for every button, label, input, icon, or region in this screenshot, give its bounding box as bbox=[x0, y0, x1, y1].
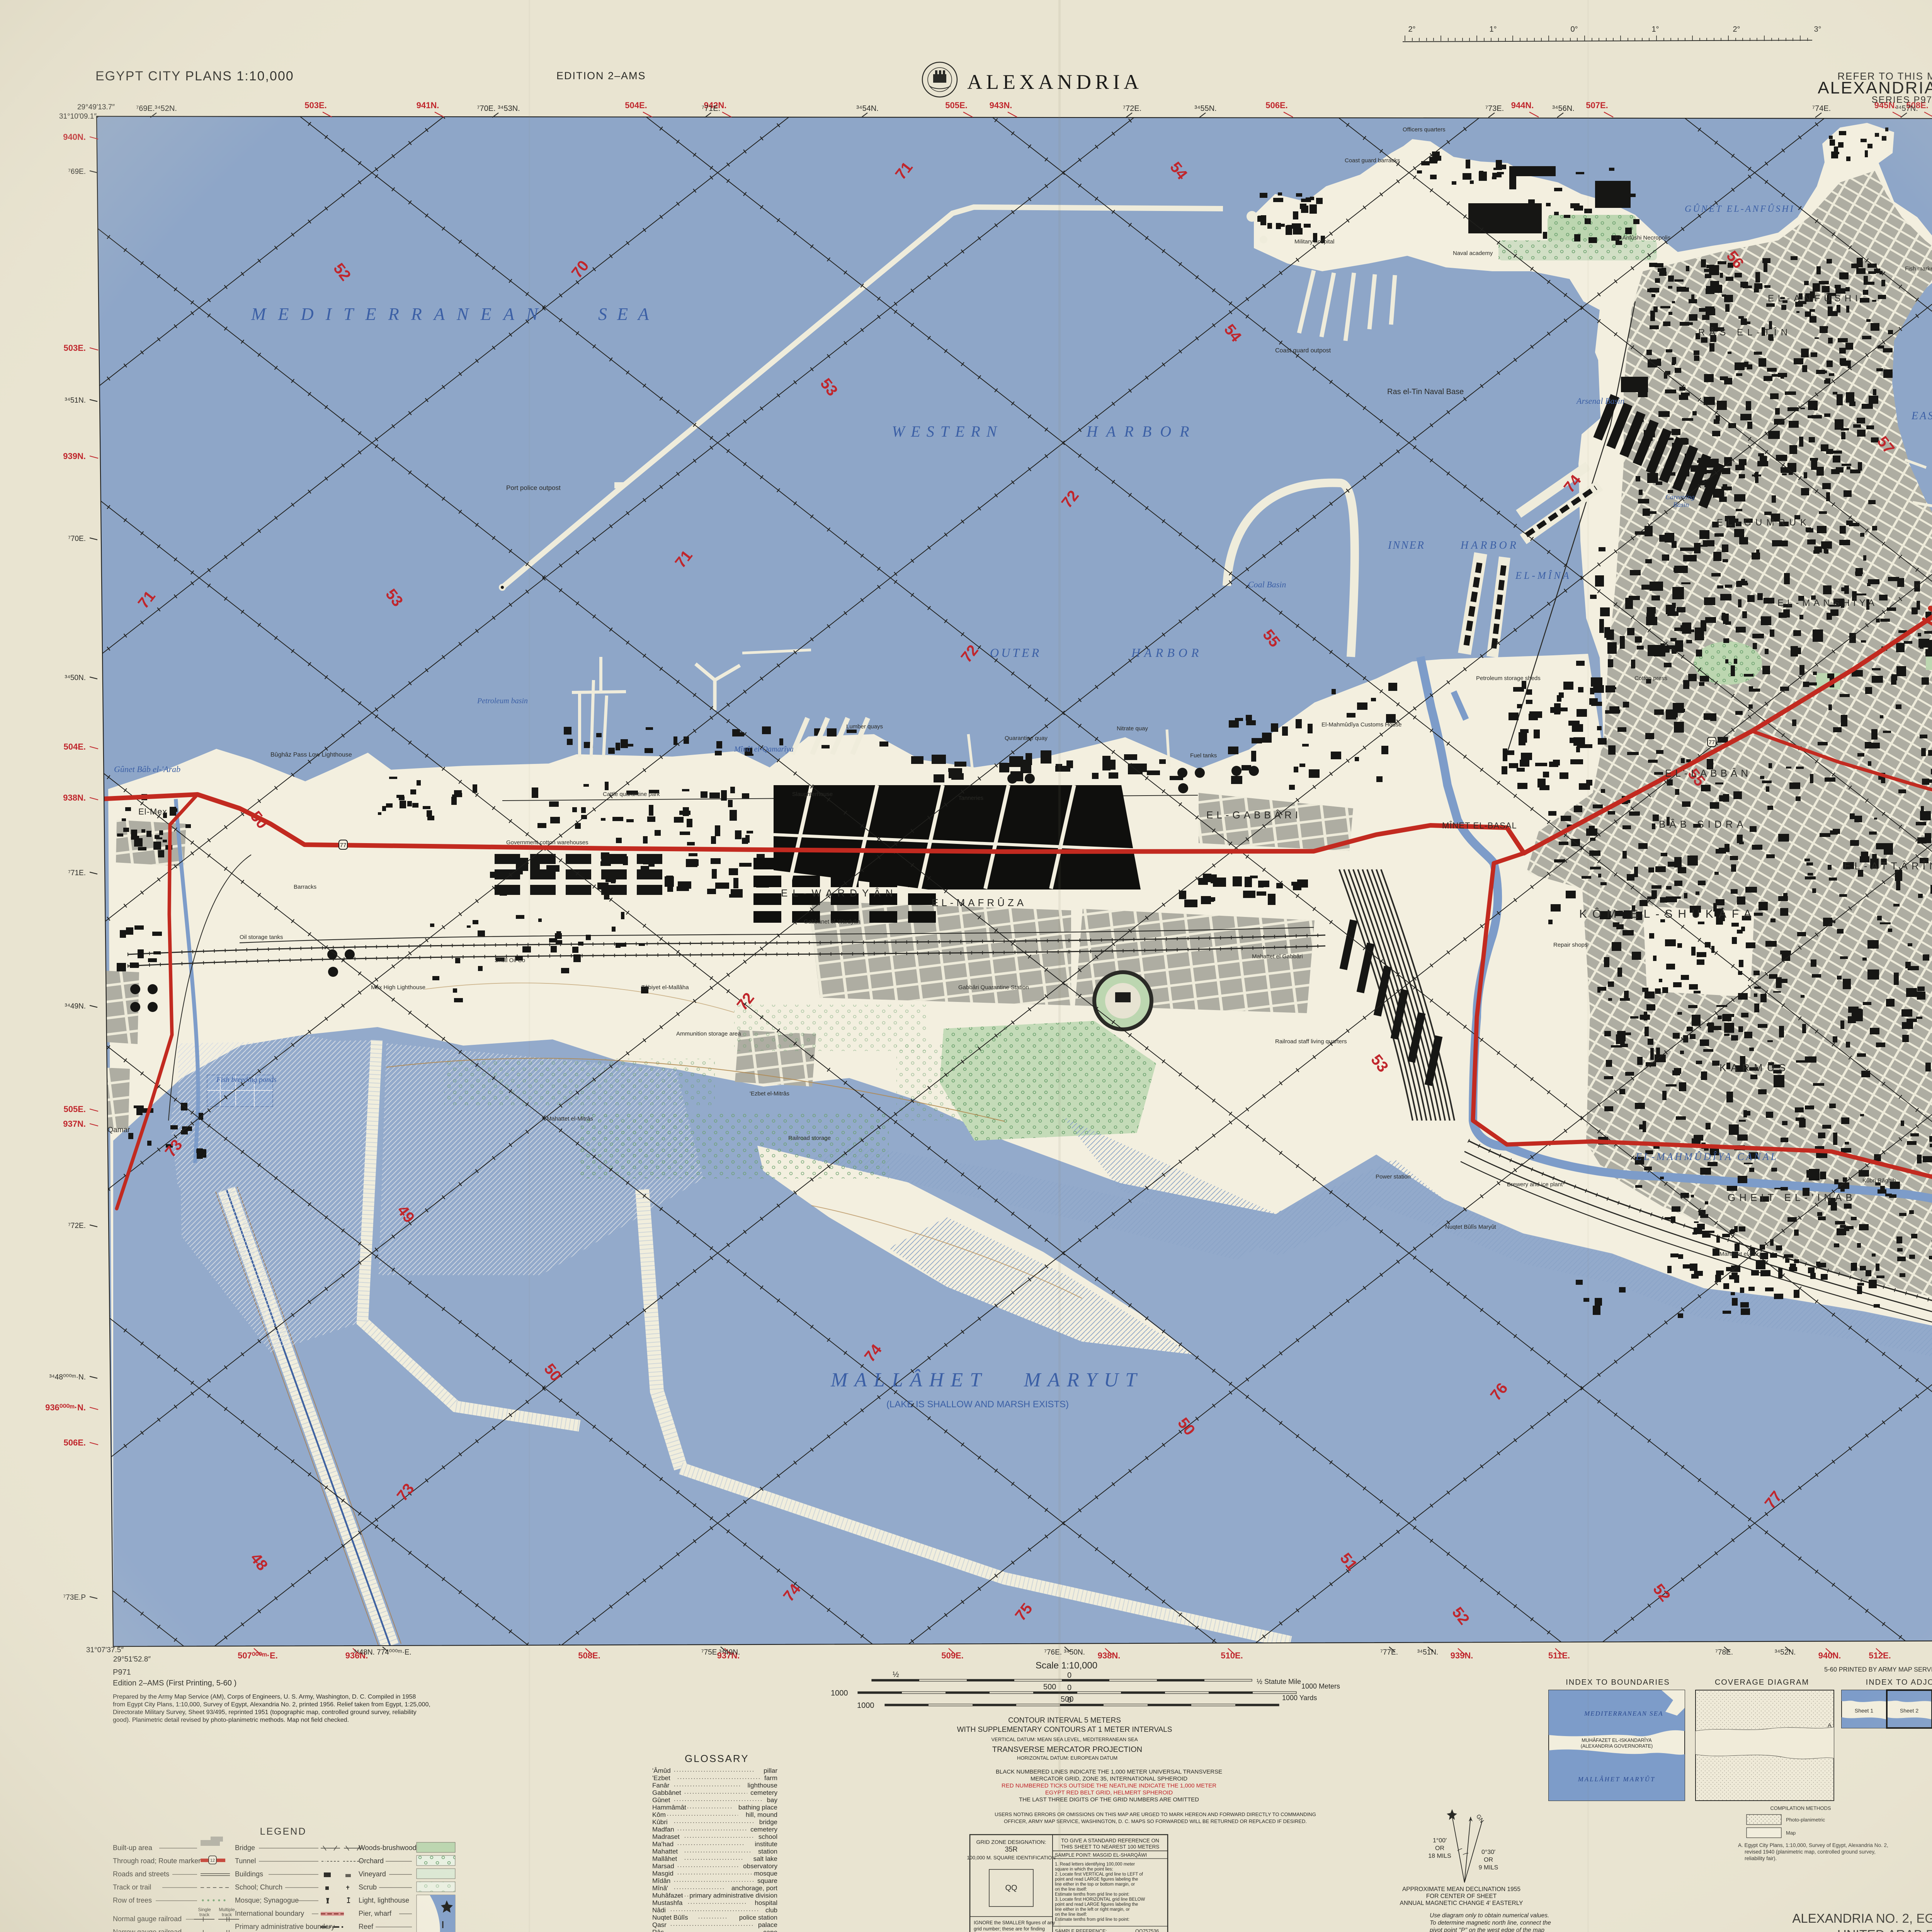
svg-text:⁷72E.: ⁷72E. bbox=[1123, 104, 1141, 113]
svg-text:Mahattet el-Farz: Mahattet el-Farz bbox=[1719, 1251, 1762, 1257]
svg-text:⁷73E.P: ⁷73E.P bbox=[63, 1594, 86, 1602]
svg-text:³⁴52N.: ³⁴52N. bbox=[1775, 1648, 1796, 1656]
svg-text:5-60 PRINTED BY ARMY MAP: 5-60 PRINTED BY ARMY MAP SERVICE, CORPS … bbox=[1824, 1666, 1932, 1673]
svg-text:³⁴57N.: ³⁴57N. bbox=[1896, 104, 1918, 113]
svg-text:OUTER: OUTER bbox=[990, 646, 1041, 660]
svg-text:Mustashfa: Mustashfa bbox=[652, 1899, 683, 1906]
svg-text:Marsad: Marsad bbox=[652, 1862, 674, 1870]
svg-text:farm: farm bbox=[764, 1774, 777, 1782]
svg-text:944N.: 944N. bbox=[1511, 100, 1534, 110]
svg-text:77: 77 bbox=[340, 842, 347, 849]
svg-text:Cotton press: Cotton press bbox=[1634, 675, 1667, 682]
svg-text:School; Church: School; Church bbox=[235, 1883, 282, 1891]
svg-text:Mînâ': Mînâ' bbox=[652, 1884, 668, 1892]
svg-text:TO GIVE A STANDARD REFERENCE O: TO GIVE A STANDARD REFERENCE ON bbox=[1061, 1838, 1159, 1844]
svg-text:⁷73E.: ⁷73E. bbox=[1485, 104, 1504, 113]
svg-text:0: 0 bbox=[1067, 1684, 1071, 1692]
svg-text:Arsenal Basin: Arsenal Basin bbox=[1576, 396, 1624, 406]
svg-text:reliability fair).: reliability fair). bbox=[1745, 1855, 1777, 1861]
svg-text:palace: palace bbox=[758, 1921, 777, 1929]
svg-text:MÎNET EL-BASAL: MÎNET EL-BASAL bbox=[1442, 821, 1517, 830]
svg-text:Normal gauge railroad: Normal gauge railroad bbox=[113, 1915, 182, 1923]
svg-text:EL-MANSHÎYA: EL-MANSHÎYA bbox=[1777, 598, 1878, 608]
svg-text:Railroad storage: Railroad storage bbox=[788, 1135, 831, 1141]
svg-text:Bûghâz Pass Low Lighthouse: Bûghâz Pass Low Lighthouse bbox=[270, 752, 352, 758]
svg-text:1000: 1000 bbox=[831, 1689, 848, 1697]
svg-text:Gabbânet: Gabbânet bbox=[652, 1789, 681, 1796]
svg-text:2. Locate first VERTICAL grid: 2. Locate first VERTICAL grid line to LE… bbox=[1055, 1872, 1143, 1877]
svg-text:⁷74E.: ⁷74E. bbox=[1812, 104, 1831, 113]
svg-text:Prepared by the Army Map Servi: Prepared by the Army Map Service (AM), C… bbox=[113, 1694, 416, 1700]
svg-text:HARBOR: HARBOR bbox=[1460, 539, 1519, 551]
svg-text:OR: OR bbox=[1484, 1857, 1493, 1863]
svg-text:RED NUMBERED TICKS OUTSIDE THE: RED NUMBERED TICKS OUTSIDE THE NEATLINE … bbox=[1002, 1782, 1216, 1789]
svg-text:2°: 2° bbox=[1408, 25, 1415, 34]
svg-text:cemetery: cemetery bbox=[750, 1826, 777, 1833]
svg-text:1°: 1° bbox=[1489, 25, 1497, 34]
svg-text:EL-GABBÂRI: EL-GABBÂRI bbox=[1206, 809, 1301, 821]
svg-text:77: 77 bbox=[1709, 739, 1715, 746]
svg-text:COVERAGE DIAGRAM: COVERAGE DIAGRAM bbox=[1715, 1678, 1809, 1687]
svg-text:cape: cape bbox=[763, 1929, 777, 1932]
svg-text:Tanneries: Tanneries bbox=[958, 795, 983, 801]
svg-text:Sheet 2: Sheet 2 bbox=[1900, 1708, 1918, 1714]
svg-text:THE LAST THREE DIGITS OF THE G: THE LAST THREE DIGITS OF THE GRID NUMBER… bbox=[1019, 1796, 1199, 1803]
svg-text:Mallâhet: Mallâhet bbox=[652, 1855, 677, 1862]
svg-text:506E.: 506E. bbox=[1265, 100, 1288, 110]
svg-text:29°49′13.7″: 29°49′13.7″ bbox=[77, 103, 115, 111]
svg-text:Ammunition storage area: Ammunition storage area bbox=[676, 1031, 741, 1037]
svg-text:940N.: 940N. bbox=[63, 132, 86, 142]
svg-text:IGNORE the SMALLER figures of: IGNORE the SMALLER figures of any bbox=[974, 1920, 1055, 1925]
svg-text:EL-MAHMÛDÎYA CANAL: EL-MAHMÛDÎYA CANAL bbox=[1635, 1151, 1778, 1162]
svg-text:point and read LARGE figures l: point and read LARGE figures labeling th… bbox=[1055, 1877, 1138, 1882]
svg-text:OFFICER, ARMY MAP SERVICE, WAS: OFFICER, ARMY MAP SERVICE, WASHINGTON, D… bbox=[1004, 1818, 1307, 1824]
svg-text:Petroleum storage sheds: Petroleum storage sheds bbox=[1476, 675, 1541, 682]
svg-text:Roads and streets: Roads and streets bbox=[113, 1870, 169, 1878]
svg-text:good). Planimetric detail rev: good). Planimetric detail revised by pho… bbox=[113, 1717, 349, 1723]
svg-text:Mosque; Synagogue: Mosque; Synagogue bbox=[235, 1896, 299, 1904]
svg-text:MERCATOR GRID, ZONE 35, INTERN: MERCATOR GRID, ZONE 35, INTERNATIONAL SP… bbox=[1031, 1776, 1187, 1782]
svg-text:Ras el-Tin Naval Base: Ras el-Tin Naval Base bbox=[1387, 388, 1464, 396]
svg-text:Nuqtet Bûlîs Maryût: Nuqtet Bûlîs Maryût bbox=[1445, 1224, 1497, 1230]
svg-text:lighthouse: lighthouse bbox=[747, 1782, 777, 1789]
svg-text:½: ½ bbox=[893, 1670, 899, 1679]
svg-text:936⁰⁰⁰ᵐ·N.: 936⁰⁰⁰ᵐ·N. bbox=[45, 1403, 86, 1412]
svg-text:INNER: INNER bbox=[1388, 539, 1425, 551]
svg-text:Built-up area: Built-up area bbox=[113, 1844, 153, 1852]
svg-text:WESTERN: WESTERN bbox=[892, 423, 1003, 440]
svg-text:square: square bbox=[757, 1877, 777, 1884]
svg-text:Coast guard outpost: Coast guard outpost bbox=[1275, 347, 1331, 354]
svg-text:Mahattet: Mahattet bbox=[652, 1848, 678, 1855]
svg-text:Through road; Route marker: Through road; Route marker bbox=[113, 1857, 201, 1865]
svg-text:Directorate Military Survey, S: Directorate Military Survey, Sheet 93/49… bbox=[113, 1709, 417, 1716]
svg-text:31°07′37.5″: 31°07′37.5″ bbox=[86, 1646, 124, 1654]
svg-text:BÂB SIDRA: BÂB SIDRA bbox=[1659, 818, 1747, 830]
svg-text:Shell Oil Co: Shell Oil Co bbox=[495, 957, 525, 964]
svg-text:⁷72E.: ⁷72E. bbox=[68, 1222, 86, 1230]
svg-text:Gabbâri Quarantine Station: Gabbâri Quarantine Station bbox=[958, 984, 1029, 991]
svg-text:2°: 2° bbox=[1733, 25, 1740, 34]
svg-text:Repair shops: Repair shops bbox=[1553, 942, 1587, 948]
svg-text:FOR CENTER OF SHEET: FOR CENTER OF SHEET bbox=[1426, 1893, 1497, 1900]
svg-text:GÛNET EL-ANFÛSHI: GÛNET EL-ANFÛSHI bbox=[1685, 204, 1795, 214]
svg-text:Mahattet el Gabbâri: Mahattet el Gabbâri bbox=[1252, 953, 1303, 960]
svg-text:943N.: 943N. bbox=[990, 100, 1012, 110]
svg-text:Government cotton warehouses: Government cotton warehouses bbox=[506, 839, 588, 846]
svg-text:Nâdi: Nâdi bbox=[652, 1906, 666, 1914]
svg-text:Reef: Reef bbox=[359, 1923, 374, 1930]
svg-text:Madraset: Madraset bbox=[652, 1833, 680, 1840]
svg-text:Mex High Lighthouse: Mex High Lighthouse bbox=[371, 984, 425, 991]
svg-text:(ALEXANDRIA GOVERNORATE): (ALEXANDRIA GOVERNORATE) bbox=[1581, 1743, 1653, 1749]
svg-text:506E.: 506E. bbox=[64, 1438, 86, 1447]
svg-text:Estimate tenths from grid line: Estimate tenths from grid line to point: bbox=[1055, 1892, 1129, 1897]
svg-text:ALEXANDRIA NO. 2, EGYPTIAN REG: ALEXANDRIA NO. 2, EGYPTIAN REGION bbox=[1792, 1911, 1932, 1925]
svg-text:El-Anfûshi Necropolis: El-Anfûshi Necropolis bbox=[1615, 235, 1670, 241]
svg-text:KÔM EL-SHUKÂFA: KÔM EL-SHUKÂFA bbox=[1579, 907, 1757, 920]
svg-text:USERS NOTING ERRORS OR OMISSIO: USERS NOTING ERRORS OR OMISSIONS ON THIS… bbox=[995, 1811, 1316, 1817]
svg-text:MEDITERRANEAN SEA: MEDITERRANEAN SEA bbox=[1584, 1710, 1663, 1717]
svg-text:'Ezbet el-Mitrâs: 'Ezbet el-Mitrâs bbox=[750, 1090, 789, 1097]
svg-text:line either in the left or rig: line either in the left or right margin,… bbox=[1055, 1907, 1130, 1912]
svg-text:⁷69E.³⁴52N.: ⁷69E.³⁴52N. bbox=[136, 104, 177, 113]
svg-text:Slaughterhouse: Slaughterhouse bbox=[792, 791, 833, 798]
svg-text:Careening: Careening bbox=[1665, 493, 1694, 501]
svg-text:1000 Meters: 1000 Meters bbox=[1301, 1682, 1340, 1690]
svg-text:Tunnel: Tunnel bbox=[235, 1857, 256, 1865]
svg-text:HORIZONTAL DATUM: EUROPEAN DAT: HORIZONTAL DATUM: EUROPEAN DATUM bbox=[1017, 1755, 1117, 1761]
svg-text:Fanâr: Fanâr bbox=[652, 1782, 670, 1789]
svg-text:GHEIT EL-'INAB: GHEIT EL-'INAB bbox=[1728, 1192, 1856, 1203]
svg-text:Coal Basin: Coal Basin bbox=[1248, 580, 1286, 589]
svg-text:503E.: 503E. bbox=[304, 100, 327, 110]
svg-text:Mînâ' el-Qamarîya: Mînâ' el-Qamarîya bbox=[734, 745, 794, 753]
svg-text:1. Read letters identifying 10: 1. Read letters identifying 100,000 mete… bbox=[1055, 1862, 1135, 1867]
svg-text:pivot point ''P'' on the west: pivot point ''P'' on the west edge of th… bbox=[1429, 1927, 1544, 1932]
svg-text:Photo-planimetric: Photo-planimetric bbox=[1786, 1817, 1825, 1823]
svg-text:Nitrate quay: Nitrate quay bbox=[1117, 725, 1148, 732]
svg-text:police station: police station bbox=[739, 1914, 777, 1921]
svg-text:UNITED ARAB REPUBLIC: UNITED ARAB REPUBLIC bbox=[1837, 1927, 1932, 1932]
svg-text:Lumber quays: Lumber quays bbox=[846, 723, 883, 730]
svg-text:Fuel tanks: Fuel tanks bbox=[1190, 752, 1217, 759]
svg-text:31°10′09.1″: 31°10′09.1″ bbox=[59, 112, 97, 121]
svg-text:EL-LABBÂN: EL-LABBÂN bbox=[1665, 767, 1752, 779]
svg-text:503E.: 503E. bbox=[64, 343, 86, 353]
svg-text:Narrow gauge railroad: Narrow gauge railroad bbox=[113, 1928, 182, 1932]
svg-text:Masgid: Masgid bbox=[652, 1870, 673, 1877]
svg-text:THIS SHEET TO NEAREST 100 METE: THIS SHEET TO NEAREST 100 METERS bbox=[1061, 1844, 1160, 1850]
svg-text:12: 12 bbox=[210, 1858, 215, 1863]
svg-text:Petroleum basin: Petroleum basin bbox=[477, 697, 528, 705]
svg-text:3°: 3° bbox=[1814, 25, 1821, 34]
svg-text:Bridge: Bridge bbox=[235, 1844, 255, 1852]
svg-text:Basin: Basin bbox=[1673, 501, 1689, 509]
svg-text:Multiple: Multiple bbox=[219, 1907, 235, 1912]
svg-text:MALLÂHET MARYUT: MALLÂHET MARYUT bbox=[830, 1369, 1143, 1391]
svg-text:EL-GUMRUK: EL-GUMRUK bbox=[1717, 517, 1811, 528]
svg-text:Kûbri: Kûbri bbox=[652, 1818, 668, 1826]
svg-text:Woods-brushwood: Woods-brushwood bbox=[359, 1844, 417, 1852]
svg-text:Kûbri Râghib: Kûbri Râghib bbox=[1862, 1177, 1896, 1184]
svg-text:Scrub: Scrub bbox=[359, 1883, 377, 1891]
svg-text:½ Statute Mile: ½ Statute Mile bbox=[1257, 1678, 1301, 1685]
svg-text:505E.: 505E. bbox=[64, 1104, 86, 1114]
svg-text:Military hospital: Military hospital bbox=[1294, 238, 1334, 245]
svg-text:To determine magnetic north li: To determine magnetic north line, connec… bbox=[1430, 1920, 1551, 1926]
svg-text:Oil storage tanks: Oil storage tanks bbox=[240, 934, 283, 940]
svg-text:LEGEND: LEGEND bbox=[260, 1826, 307, 1837]
svg-text:OR: OR bbox=[1435, 1845, 1444, 1852]
svg-text:TRANSVERSE MERCATOR PROJECTION: TRANSVERSE MERCATOR PROJECTION bbox=[992, 1745, 1142, 1754]
svg-text:bay: bay bbox=[767, 1796, 778, 1804]
svg-text:Kôm: Kôm bbox=[652, 1811, 666, 1818]
svg-text:International boundary: International boundary bbox=[235, 1910, 304, 1917]
svg-text:SEA: SEA bbox=[598, 304, 659, 324]
svg-text:EL-ATTÂRÎN: EL-ATTÂRÎN bbox=[1844, 860, 1932, 872]
svg-text:SAMPLE REFERENCE:: SAMPLE REFERENCE: bbox=[1055, 1929, 1107, 1932]
svg-text:Muhâfazet: Muhâfazet bbox=[652, 1892, 683, 1899]
svg-text:Fish market: Fish market bbox=[1905, 265, 1932, 272]
svg-text:Hammâmât: Hammâmât bbox=[652, 1804, 686, 1811]
svg-text:SAMPLE POINT: MASGID EL-SHARQÂ: SAMPLE POINT: MASGID EL-SHARQÂWI bbox=[1055, 1852, 1147, 1858]
svg-text:⁷69E.: ⁷69E. bbox=[68, 168, 86, 176]
svg-text:⁷77E.: ⁷77E. bbox=[1380, 1648, 1398, 1656]
svg-text:⁷71E.: ⁷71E. bbox=[68, 869, 86, 877]
svg-text:0°30′: 0°30′ bbox=[1481, 1849, 1495, 1855]
svg-text:³⁴54N.: ³⁴54N. bbox=[856, 104, 879, 113]
svg-text:3. Locate first HORIZONTAL gri: 3. Locate first HORIZONTAL grid line BEL… bbox=[1055, 1897, 1145, 1902]
svg-text:(LAKE IS SHALLOW AND MARSH EXI: (LAKE IS SHALLOW AND MARSH EXISTS) bbox=[886, 1399, 1069, 1410]
svg-text:P971: P971 bbox=[113, 1668, 131, 1677]
svg-text:bridge: bridge bbox=[759, 1818, 777, 1826]
svg-text:504E.: 504E. bbox=[625, 100, 647, 110]
svg-text:Coast guard barracks: Coast guard barracks bbox=[1345, 157, 1400, 164]
svg-text:MEDITERRANEAN: MEDITERRANEAN bbox=[251, 304, 550, 324]
svg-text:Gûnet Bâb el-'Arab: Gûnet Bâb el-'Arab bbox=[114, 764, 180, 774]
svg-text:938N.: 938N. bbox=[63, 793, 86, 803]
svg-text:Railroad staff living quarters: Railroad staff living quarters bbox=[1275, 1038, 1347, 1045]
svg-text:0: 0 bbox=[1067, 1671, 1071, 1680]
svg-text:Mîdân: Mîdân bbox=[652, 1877, 670, 1884]
svg-text:track: track bbox=[222, 1912, 232, 1917]
svg-text:WITH SUPPLEMENTARY CONTOURS AT: WITH SUPPLEMENTARY CONTOURS AT 1 METER I… bbox=[957, 1726, 1172, 1734]
svg-text:INDEX TO ADJOINING SHEETS: INDEX TO ADJOINING SHEETS bbox=[1866, 1678, 1932, 1687]
svg-text:KARMÛS: KARMÛS bbox=[1719, 1062, 1790, 1073]
svg-text:Estimate tenths from grid line: Estimate tenths from grid line to point: bbox=[1055, 1917, 1129, 1922]
svg-text:bathing place: bathing place bbox=[738, 1804, 777, 1811]
svg-text:station: station bbox=[758, 1848, 777, 1855]
svg-text:Scale 1:10,000: Scale 1:10,000 bbox=[1036, 1660, 1097, 1671]
svg-text:club: club bbox=[765, 1906, 777, 1914]
svg-text:504E.: 504E. bbox=[64, 742, 86, 752]
svg-text:Port police outpost: Port police outpost bbox=[506, 484, 561, 492]
svg-text:A. Egypt City Plans, 1:10,000,: A. Egypt City Plans, 1:10,000, Survey of… bbox=[1738, 1842, 1888, 1848]
svg-text:'Ezbet: 'Ezbet bbox=[652, 1774, 670, 1782]
svg-text:EGYPT CITY PLANS 1:10,000: EGYPT CITY PLANS 1:10,000 bbox=[95, 69, 294, 83]
svg-text:500: 500 bbox=[1043, 1683, 1056, 1691]
svg-text:Fish breeding ponds: Fish breeding ponds bbox=[216, 1076, 277, 1084]
svg-text:Use diagram only to obtain num: Use diagram only to obtain numerical val… bbox=[1430, 1912, 1549, 1919]
svg-text:Ma'had: Ma'had bbox=[652, 1840, 673, 1848]
svg-text:ALEXANDRIA: ALEXANDRIA bbox=[967, 70, 1143, 94]
svg-text:line either in the top or bott: line either in the top or bottom margin,… bbox=[1055, 1882, 1135, 1887]
svg-text:primary administrative divisio: primary administrative division bbox=[689, 1892, 777, 1899]
svg-text:³⁴55N.: ³⁴55N. bbox=[1194, 104, 1217, 113]
svg-text:grid number; these are for fin: grid number; these are for finding bbox=[974, 1926, 1045, 1932]
svg-text:0: 0 bbox=[1067, 1696, 1071, 1704]
svg-text:939N.: 939N. bbox=[63, 451, 86, 461]
svg-text:EGYPT RED BELT GRID, HELMERT S: EGYPT RED BELT GRID, HELMERT SPHEROID bbox=[1045, 1789, 1173, 1796]
svg-text:³⁴49N.: ³⁴49N. bbox=[65, 1002, 86, 1010]
svg-text:anchorage, port: anchorage, port bbox=[731, 1884, 777, 1892]
svg-text:9 MILS: 9 MILS bbox=[1479, 1864, 1498, 1871]
svg-text:COMPILATION METHODS: COMPILATION METHODS bbox=[1770, 1805, 1831, 1811]
svg-text:track: track bbox=[199, 1912, 210, 1917]
svg-text:square in which the point lies: square in which the point lies: bbox=[1055, 1867, 1113, 1872]
svg-text:Edition 2–AMS (First Printing,: Edition 2–AMS (First Printing, 5-60 ) bbox=[113, 1679, 236, 1687]
svg-text:Gabbânet el-Wardyân: Gabbânet el-Wardyân bbox=[804, 918, 860, 925]
svg-text:SERIES P971: SERIES P971 bbox=[1872, 95, 1932, 105]
svg-text:³⁴51N.: ³⁴51N. bbox=[65, 396, 86, 405]
svg-text:EL-WARDYÂN: EL-WARDYÂN bbox=[781, 887, 898, 899]
svg-text:Tâbiyet el-Mallâha: Tâbiyet el-Mallâha bbox=[641, 984, 689, 991]
svg-text:941N.: 941N. bbox=[417, 100, 439, 110]
svg-text:APPROXIMATE MEAN DECLINATION 1: APPROXIMATE MEAN DECLINATION 1955 bbox=[1402, 1886, 1520, 1893]
svg-text:Gûnet: Gûnet bbox=[652, 1796, 670, 1804]
svg-text:institute: institute bbox=[755, 1840, 777, 1848]
svg-text:hospital: hospital bbox=[755, 1899, 777, 1906]
svg-text:Pier, wharf: Pier, wharf bbox=[359, 1910, 392, 1917]
svg-text:CONTOUR INTERVAL 5 METERS: CONTOUR INTERVAL 5 METERS bbox=[1008, 1716, 1121, 1725]
svg-text:0°: 0° bbox=[1570, 25, 1578, 34]
svg-text:Vineyard: Vineyard bbox=[359, 1870, 386, 1878]
svg-text:GRID ZONE DESIGNATION:: GRID ZONE DESIGNATION: bbox=[976, 1839, 1046, 1845]
svg-text:³⁴51N.: ³⁴51N. bbox=[1417, 1648, 1439, 1656]
svg-text:⁷70E. ³⁴53N.: ⁷70E. ³⁴53N. bbox=[477, 104, 520, 113]
svg-text:Primary administrative boundar: Primary administrative boundary bbox=[235, 1923, 335, 1930]
svg-text:EL-MÎNA: EL-MÎNA bbox=[1515, 570, 1571, 581]
svg-text:QQ757536: QQ757536 bbox=[1135, 1929, 1159, 1932]
svg-text:from Egypt City Plans, 1:10,00: from Egypt City Plans, 1:10,000, Survey … bbox=[113, 1701, 430, 1708]
svg-text:⁷76E. ³⁴50N.: ⁷76E. ³⁴50N. bbox=[1044, 1648, 1085, 1656]
svg-text:1000 Yards: 1000 Yards bbox=[1282, 1694, 1317, 1702]
svg-text:Single: Single bbox=[198, 1907, 211, 1912]
svg-text:29°51′52.8″: 29°51′52.8″ bbox=[113, 1655, 151, 1663]
svg-text:QQ: QQ bbox=[1005, 1884, 1017, 1892]
svg-text:Qasr: Qasr bbox=[652, 1921, 667, 1929]
svg-text:Row of trees: Row of trees bbox=[113, 1896, 152, 1904]
svg-text:mosque: mosque bbox=[754, 1870, 777, 1877]
svg-text:hill, mound: hill, mound bbox=[746, 1811, 777, 1818]
svg-text:1°: 1° bbox=[1651, 25, 1659, 34]
svg-text:RÂS EL-TÎN: RÂS EL-TÎN bbox=[1698, 327, 1792, 338]
svg-text:100,000 M. SQUARE IDENTIFICATI: 100,000 M. SQUARE IDENTIFICATION bbox=[967, 1855, 1055, 1861]
svg-text:Naval academy: Naval academy bbox=[1453, 250, 1493, 257]
svg-text:Buildings: Buildings bbox=[235, 1870, 263, 1878]
svg-text:³⁴50N.: ³⁴50N. bbox=[65, 674, 86, 682]
svg-text:GLOSSARY: GLOSSARY bbox=[685, 1753, 749, 1764]
svg-text:HARBOR: HARBOR bbox=[1131, 646, 1202, 660]
svg-text:Nuqtet Bûlîs: Nuqtet Bûlîs bbox=[652, 1914, 688, 1921]
svg-text:'Âmûd: 'Âmûd bbox=[652, 1767, 671, 1774]
svg-text:ANNUAL MAGNETIC CHANGE 4′ EAST: ANNUAL MAGNETIC CHANGE 4′ EASTERLY bbox=[1400, 1900, 1523, 1906]
svg-text:Map: Map bbox=[1786, 1830, 1796, 1836]
svg-text:35R: 35R bbox=[1005, 1845, 1017, 1853]
svg-text:Sheet 1: Sheet 1 bbox=[1855, 1708, 1873, 1714]
svg-text:EL-MAFRÛZA: EL-MAFRÛZA bbox=[932, 897, 1027, 908]
svg-text:Track or trail: Track or trail bbox=[113, 1883, 151, 1891]
svg-text:Orchard: Orchard bbox=[359, 1857, 384, 1865]
svg-text:INDEX TO BOUNDARIES: INDEX TO BOUNDARIES bbox=[1566, 1678, 1670, 1687]
svg-text:BLACK NUMBERED LINES INDICATE: BLACK NUMBERED LINES INDICATE THE 1,000 … bbox=[996, 1769, 1222, 1775]
svg-text:MUHÂFAZET EL-ISKANDARÎYA: MUHÂFAZET EL-ISKANDARÎYA bbox=[1582, 1737, 1652, 1743]
svg-text:El-Mahmûdîya Customs House: El-Mahmûdîya Customs House bbox=[1321, 721, 1402, 728]
svg-text:Quarantine quay: Quarantine quay bbox=[1005, 735, 1048, 742]
svg-text:VERTICAL DATUM: MEAN SEA LEVEL: VERTICAL DATUM: MEAN SEA LEVEL, MEDITERR… bbox=[991, 1736, 1138, 1742]
svg-text:Râs: Râs bbox=[652, 1929, 664, 1932]
svg-text:³⁴48N. 774⁰⁰⁰ᵐ·E.: ³⁴48N. 774⁰⁰⁰ᵐ·E. bbox=[354, 1648, 412, 1656]
svg-text:⁷70E.: ⁷70E. bbox=[68, 535, 86, 543]
svg-text:Brewery and ice plant: Brewery and ice plant bbox=[1507, 1181, 1563, 1188]
svg-text:El-Mex: El-Mex bbox=[138, 807, 167, 816]
svg-text:Barracks: Barracks bbox=[294, 884, 316, 890]
svg-text:school: school bbox=[759, 1833, 777, 1840]
svg-text:³⁴56N.: ³⁴56N. bbox=[1552, 104, 1575, 113]
svg-text:³⁴48⁰⁰⁰ᵐ·N.: ³⁴48⁰⁰⁰ᵐ·N. bbox=[49, 1373, 86, 1381]
svg-text:Madfan: Madfan bbox=[652, 1826, 674, 1833]
svg-text:Power station: Power station bbox=[1376, 1173, 1411, 1180]
svg-text:Light, lighthouse: Light, lighthouse bbox=[359, 1896, 409, 1904]
svg-text:507E.: 507E. bbox=[1586, 100, 1608, 110]
svg-text:⁷78E.: ⁷78E. bbox=[1715, 1648, 1733, 1656]
svg-text:A: A bbox=[1828, 1722, 1832, 1729]
svg-text:1000: 1000 bbox=[857, 1701, 874, 1710]
svg-text:revised 1940 (planimetric map,: revised 1940 (planimetric map, controlle… bbox=[1745, 1849, 1876, 1855]
svg-text:937N.: 937N. bbox=[63, 1119, 86, 1129]
svg-text:MALLÂHET MARYÛT: MALLÂHET MARYÛT bbox=[1578, 1776, 1656, 1783]
svg-text:pillar: pillar bbox=[764, 1767, 777, 1774]
svg-text:Officers quarters: Officers quarters bbox=[1403, 126, 1446, 133]
svg-text:EDITION 2–AMS: EDITION 2–AMS bbox=[556, 70, 646, 82]
svg-text:⁷75E.³⁴49N.: ⁷75E.³⁴49N. bbox=[701, 1648, 740, 1656]
svg-text:18 MILS: 18 MILS bbox=[1428, 1853, 1451, 1859]
svg-text:505E.: 505E. bbox=[945, 100, 968, 110]
svg-text:⁷71E.: ⁷71E. bbox=[702, 104, 720, 113]
svg-text:EL-ANFÛSHI: EL-ANFÛSHI bbox=[1768, 293, 1862, 304]
svg-text:cemetery: cemetery bbox=[750, 1789, 777, 1796]
svg-text:EASTERN: EASTERN bbox=[1911, 410, 1932, 422]
svg-text:HARBOR: HARBOR bbox=[1086, 423, 1198, 440]
svg-text:point and read LARGE figures l: point and read LARGE figures labeling th… bbox=[1055, 1902, 1138, 1907]
svg-text:observatory: observatory bbox=[743, 1862, 777, 1870]
svg-text:Cattle quarantine park: Cattle quarantine park bbox=[603, 791, 660, 798]
svg-text:salt lake: salt lake bbox=[753, 1855, 777, 1862]
svg-text:Mahattet el-Mitrâs: Mahattet el-Mitrâs bbox=[547, 1116, 593, 1122]
svg-text:1°00′: 1°00′ bbox=[1433, 1837, 1447, 1844]
